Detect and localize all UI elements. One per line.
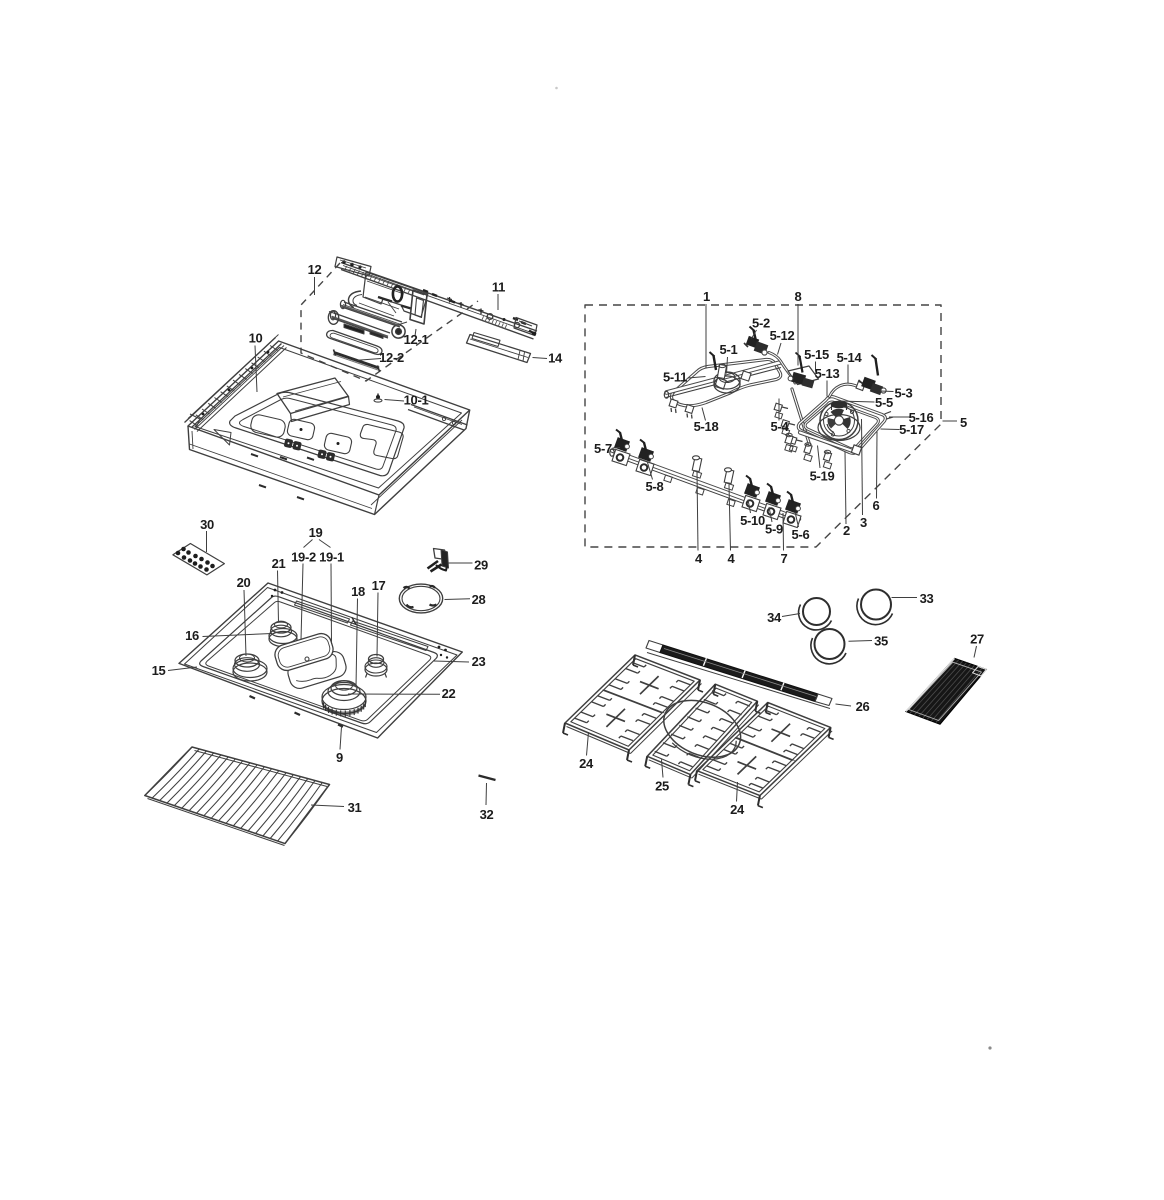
- svg-text:34: 34: [767, 610, 782, 625]
- svg-text:26: 26: [856, 699, 870, 714]
- svg-text:15: 15: [152, 663, 166, 678]
- svg-text:10: 10: [249, 331, 263, 346]
- svg-text:5-1: 5-1: [720, 342, 738, 357]
- svg-text:29: 29: [474, 558, 488, 573]
- svg-text:28: 28: [472, 592, 486, 607]
- svg-text:23: 23: [472, 654, 486, 669]
- svg-text:5-17: 5-17: [899, 422, 924, 437]
- svg-text:35: 35: [874, 634, 888, 649]
- svg-text:24: 24: [579, 756, 594, 771]
- svg-text:27: 27: [970, 632, 984, 647]
- svg-text:5-7: 5-7: [594, 441, 612, 456]
- svg-text:22: 22: [442, 686, 456, 701]
- svg-text:5-4: 5-4: [771, 419, 790, 434]
- svg-text:5-9: 5-9: [765, 522, 783, 537]
- svg-text:5-10: 5-10: [740, 513, 765, 528]
- svg-text:5-6: 5-6: [792, 527, 810, 542]
- svg-text:5-19: 5-19: [810, 469, 835, 484]
- svg-text:4: 4: [695, 551, 703, 566]
- svg-text:30: 30: [200, 517, 214, 532]
- svg-text:5-18: 5-18: [694, 419, 719, 434]
- svg-text:5-13: 5-13: [815, 366, 840, 381]
- svg-text:16: 16: [185, 628, 199, 643]
- svg-text:5-8: 5-8: [646, 479, 664, 494]
- svg-text:5-5: 5-5: [875, 395, 893, 410]
- svg-text:31: 31: [348, 800, 362, 815]
- svg-text:3: 3: [860, 515, 867, 530]
- svg-text:17: 17: [372, 578, 386, 593]
- svg-text:12-2: 12-2: [379, 350, 404, 365]
- svg-text:5: 5: [960, 415, 967, 430]
- svg-text:6: 6: [873, 498, 880, 513]
- svg-text:5-11: 5-11: [663, 370, 687, 385]
- svg-text:1: 1: [703, 289, 710, 304]
- svg-text:5-12: 5-12: [770, 328, 795, 343]
- svg-text:5-2: 5-2: [752, 316, 770, 331]
- svg-text:8: 8: [795, 289, 802, 304]
- svg-text:32: 32: [480, 807, 494, 822]
- svg-text:14: 14: [548, 351, 563, 366]
- svg-text:25: 25: [655, 779, 669, 794]
- svg-text:4: 4: [728, 551, 736, 566]
- svg-text:18: 18: [351, 584, 365, 599]
- svg-text:19: 19: [309, 525, 323, 540]
- svg-text:19-2: 19-2: [291, 550, 316, 565]
- svg-text:7: 7: [781, 551, 788, 566]
- svg-text:33: 33: [920, 591, 934, 606]
- svg-text:20: 20: [237, 575, 251, 590]
- svg-text:12-1: 12-1: [404, 332, 429, 347]
- svg-text:5-15: 5-15: [804, 347, 829, 362]
- svg-text:19-1: 19-1: [319, 550, 344, 565]
- svg-text:11: 11: [492, 280, 505, 295]
- svg-text:5-14: 5-14: [837, 350, 863, 365]
- svg-text:9: 9: [336, 750, 343, 765]
- svg-text:21: 21: [272, 556, 286, 571]
- svg-text:24: 24: [730, 802, 745, 817]
- svg-text:5-3: 5-3: [895, 386, 913, 401]
- svg-text:10-1: 10-1: [404, 393, 429, 408]
- svg-text:12: 12: [308, 262, 322, 277]
- svg-text:2: 2: [843, 523, 850, 538]
